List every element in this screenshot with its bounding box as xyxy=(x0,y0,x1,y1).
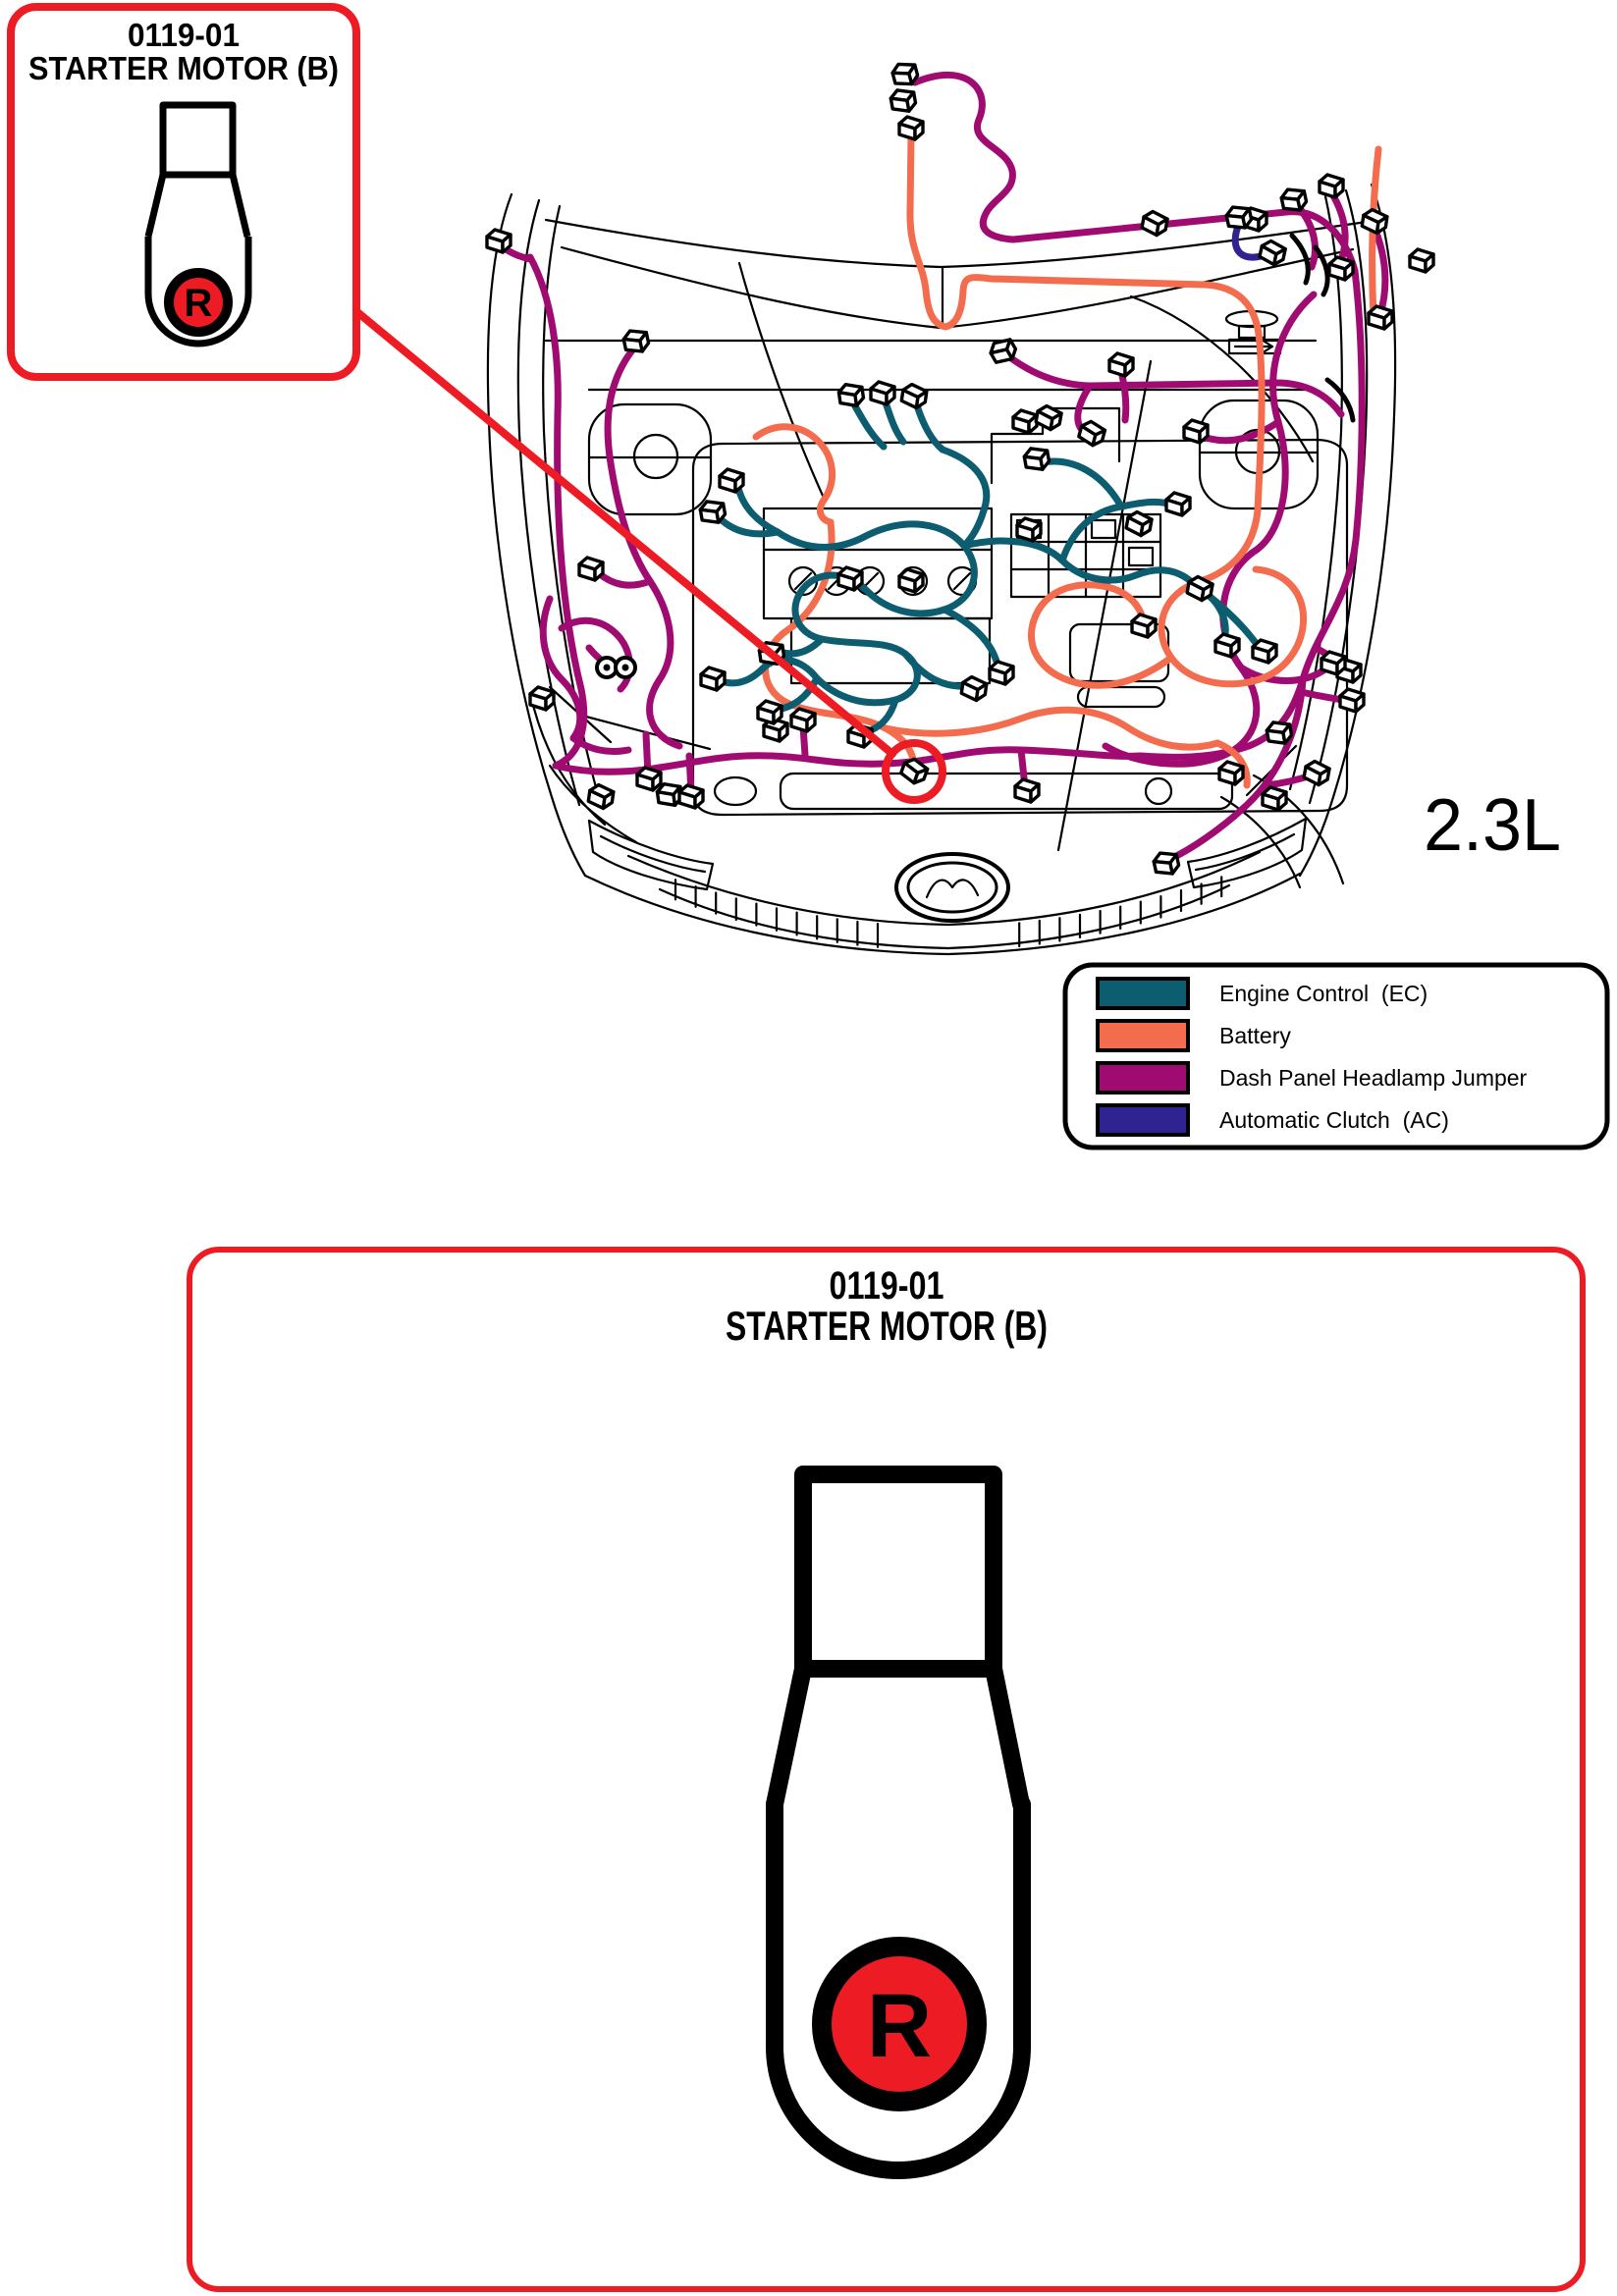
connector-icon xyxy=(1153,850,1180,877)
diagram-canvas: 2.3L Engine Control (EC) Battery Dash Pa… xyxy=(0,0,1617,2296)
legend-swatch-dash-panel-headlamp-jumper xyxy=(1098,1063,1188,1093)
connector-icon xyxy=(1023,446,1051,472)
legend-label: Battery xyxy=(1219,1023,1291,1048)
connector-icon xyxy=(1320,175,1343,197)
connector-icon xyxy=(871,382,894,404)
connector-icon xyxy=(1141,210,1168,237)
wiring-harnesses xyxy=(503,75,1385,860)
connector-icon xyxy=(791,709,815,731)
callout-box-bottom: 0119-01 STARTER MOTOR (B) R xyxy=(189,1250,1583,2289)
connector-icon xyxy=(899,569,923,592)
connector-icon xyxy=(1166,493,1190,515)
harness-wire-dash-panel-headlamp-jumper xyxy=(573,738,628,752)
connector-icon xyxy=(1132,614,1156,637)
connector-icon xyxy=(622,328,650,354)
connector-icon xyxy=(758,701,782,723)
connector-icon xyxy=(1013,410,1037,433)
connector-icon xyxy=(1184,420,1208,443)
inner-structure-path xyxy=(530,263,1347,887)
callout-box-top: 0119-01 STARTER MOTOR (B) R xyxy=(11,7,356,377)
front-crossmember xyxy=(715,774,1232,809)
legend-row-automatic-clutch: Automatic Clutch (AC) xyxy=(1098,1105,1449,1135)
legend-swatch-battery xyxy=(1098,1021,1188,1050)
terminal-letter: R xyxy=(867,1976,932,2076)
connector-icon xyxy=(487,230,511,252)
connector-icon xyxy=(1219,762,1243,784)
connector-icon xyxy=(1321,652,1345,674)
harness-wire-battery xyxy=(886,710,1217,747)
callout-top-name: STARTER MOTOR (B) xyxy=(28,50,339,86)
connector-icon xyxy=(990,662,1013,684)
legend-row-engine-control: Engine Control (EC) xyxy=(1098,979,1428,1008)
connector-icon xyxy=(1329,257,1353,280)
callout-bottom-name: STARTER MOTOR (B) xyxy=(726,1303,1048,1349)
connector-icon xyxy=(889,87,917,114)
legend-swatch-engine-control xyxy=(1098,979,1188,1008)
headlamp-left xyxy=(589,821,713,889)
ring-terminals xyxy=(597,658,635,677)
connector-icon xyxy=(1253,640,1276,663)
connector-icon xyxy=(679,785,703,808)
brand-emblem xyxy=(896,854,1008,921)
connector-icon xyxy=(530,687,554,710)
harness-wire-engine-control xyxy=(1043,461,1121,507)
legend-label: Dash Panel Headlamp Jumper xyxy=(1219,1065,1528,1091)
connector-icon xyxy=(901,383,928,408)
engine-size-label: 2.3L xyxy=(1424,783,1561,866)
harness-wire-dash-panel-headlamp-jumper xyxy=(1121,371,1126,420)
legend-label: Engine Control (EC) xyxy=(1219,981,1428,1006)
harness-wire-battery xyxy=(910,135,1262,510)
connector-icon xyxy=(588,783,615,809)
callout-box-bottom-border xyxy=(189,1250,1583,2289)
legend-swatch-automatic-clutch xyxy=(1098,1105,1188,1135)
connector-icon xyxy=(1263,787,1286,810)
connector-icon xyxy=(1109,353,1133,376)
harness-wire-dash-panel-headlamp-jumper xyxy=(915,75,1355,271)
legend: Engine Control (EC) Battery Dash Panel H… xyxy=(1065,965,1607,1148)
wiring-diagram-page: 2.3L Engine Control (EC) Battery Dash Pa… xyxy=(0,0,1617,2296)
connector-icon xyxy=(720,469,743,492)
connector-icon xyxy=(1017,518,1041,541)
connector-icon xyxy=(701,667,725,690)
harness-wire-engine-control xyxy=(738,488,778,532)
callout-bottom-code: 0119-01 xyxy=(830,1264,944,1308)
legend-row-dash-panel-headlamp-jumper: Dash Panel Headlamp Jumper xyxy=(1098,1063,1528,1093)
connector-icon xyxy=(899,117,923,139)
harness-wire-engine-control xyxy=(854,404,884,447)
connector-icon xyxy=(1303,760,1330,786)
connector-icon xyxy=(1215,634,1239,657)
connector-icon xyxy=(837,382,864,407)
connector-icon xyxy=(1362,208,1388,234)
headlamp-right xyxy=(1188,819,1306,887)
connector-icon xyxy=(637,768,661,790)
legend-label: Automatic Clutch (AC) xyxy=(1219,1107,1449,1133)
connector-icon xyxy=(1015,779,1039,802)
connector-icon xyxy=(579,558,603,580)
terminal-letter: R xyxy=(185,282,213,325)
connector-icon xyxy=(1259,240,1286,266)
connector-icon xyxy=(1340,689,1364,712)
connector-icon xyxy=(838,567,862,590)
callout-top-code: 0119-01 xyxy=(128,17,240,53)
harness-wire-dash-panel-headlamp-jumper xyxy=(1007,355,1341,414)
connector-icon xyxy=(1369,306,1392,329)
connector-icon xyxy=(961,675,988,701)
harness-wire-engine-control xyxy=(886,402,903,442)
connector-icon xyxy=(1410,249,1433,272)
